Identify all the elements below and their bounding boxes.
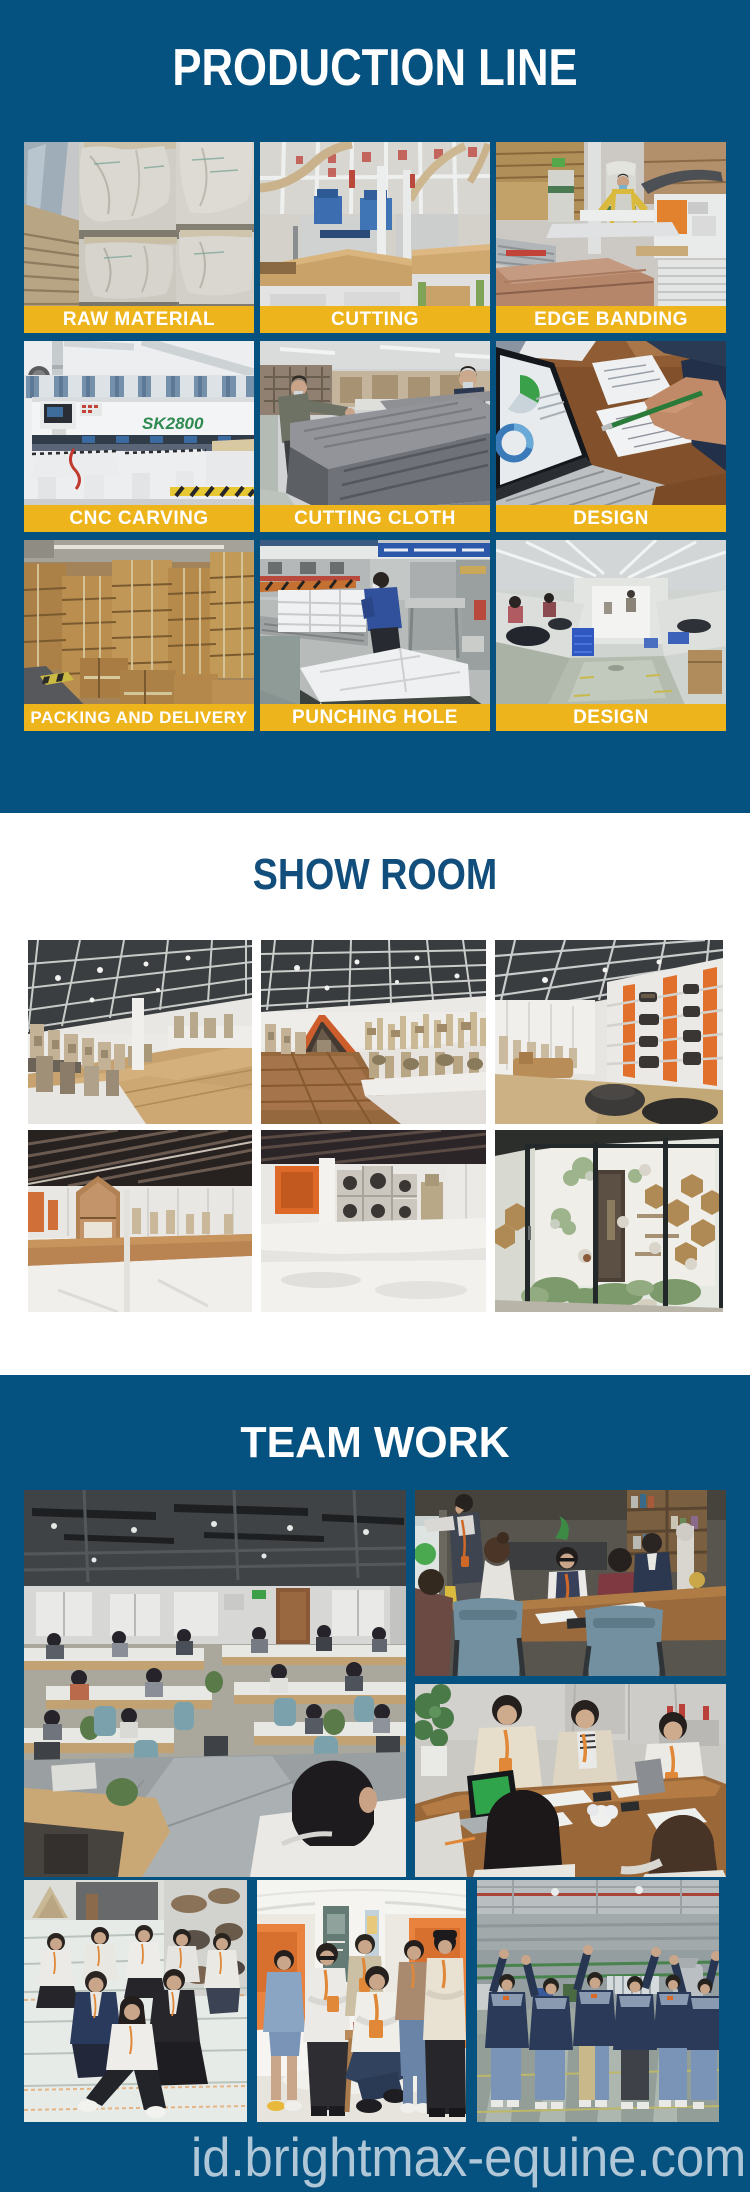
svg-text:SK2800: SK2800 [142, 414, 204, 433]
